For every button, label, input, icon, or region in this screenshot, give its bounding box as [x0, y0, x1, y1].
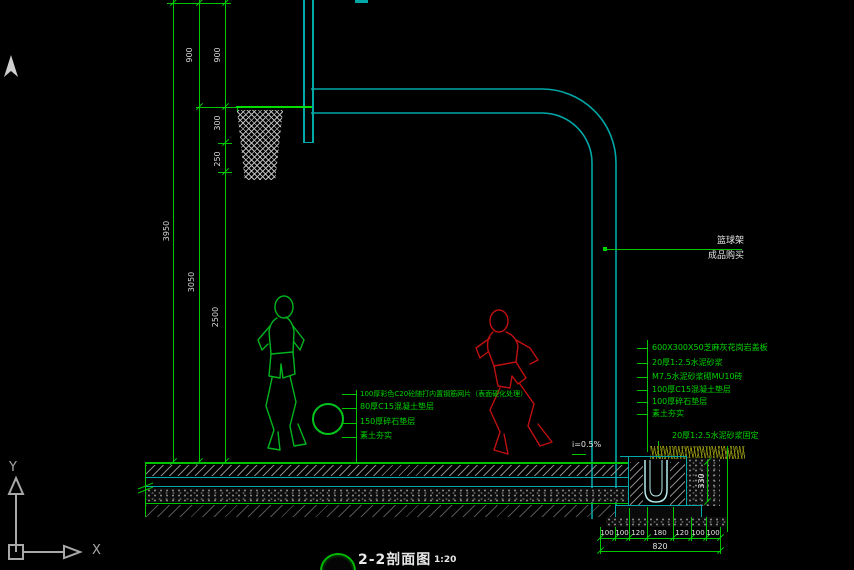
court-note: 100厚彩色C20砼随打内置钢筋网片（表面硬化处理）: [360, 389, 527, 399]
y-axis-label: Y: [9, 460, 17, 475]
dim-label-250: 250: [212, 144, 224, 174]
section-scale: 1:20: [434, 555, 456, 565]
court-note: 150厚碎石垫层: [360, 417, 415, 427]
note-leader-branch: [637, 363, 648, 364]
pavement-layer-line: [146, 503, 628, 504]
drain-wall-hatch: [670, 462, 685, 505]
dim-label-330: 330: [696, 466, 708, 496]
edge-note: 100厚碎石垫层: [652, 397, 707, 407]
mortar-label: 20厚1:2.5水泥砂浆固定: [672, 431, 759, 441]
dimension-extension-line: [727, 446, 728, 532]
dim-label-300: 300: [212, 108, 224, 138]
x-axis-label: X: [92, 543, 101, 558]
bottom-dim: 100: [614, 529, 630, 538]
note-leader-branch: [637, 402, 648, 403]
hoop-arm-and-pole: [300, 78, 630, 524]
pole-leader-dot: [603, 247, 607, 251]
foundation-bed: [606, 517, 728, 527]
cropped-structure-stub: [355, 0, 368, 3]
pavement-gravel-layer: [146, 488, 628, 502]
note-leader-branch: [637, 377, 648, 378]
drain-cover-line: [620, 456, 687, 457]
pavement-layer-line: [146, 477, 628, 478]
dimension-line: [600, 551, 721, 552]
section-mark-circle: [320, 553, 356, 570]
bottom-dim: 100: [690, 529, 706, 538]
pole-label-line1: 篮球架: [700, 237, 744, 246]
drain-wall-line: [628, 456, 629, 507]
dim-label-3050: 3050: [186, 267, 198, 297]
note-leader-branch: [342, 408, 356, 409]
section-title: 2-2剖面图: [358, 549, 431, 569]
dimension-extension-line: [225, 0, 226, 463]
section-break-mark: [137, 479, 155, 495]
slope-label: i=0.5%: [572, 440, 601, 449]
basketball: [312, 403, 344, 435]
court-note: 素土夯实: [360, 431, 392, 441]
edge-note: 600X300X50芝麻灰花岗岩盖板: [652, 343, 768, 353]
dim-label-3950: 3950: [161, 216, 173, 246]
bottom-dim: 100: [705, 529, 721, 538]
note-leader-line: [356, 390, 357, 462]
note-leader-branch: [342, 394, 356, 395]
court-note: 80厚C15混凝土垫层: [360, 402, 434, 412]
pavement-subgrade: [146, 505, 628, 517]
bottom-dim: 100: [599, 529, 615, 538]
bottom-dim: 120: [674, 529, 690, 538]
bottom-dim: 180: [652, 529, 668, 538]
pole-label-line2: 成品购买: [692, 252, 744, 261]
player-green-figure: [248, 294, 314, 458]
bottom-dim: 120: [630, 529, 646, 538]
cad-section-drawing: 900 900 300 250 3950 3050 2500 篮球架 成品购买: [0, 0, 854, 570]
note-leader-branch: [637, 348, 648, 349]
hoop-net: [237, 110, 283, 180]
hoop-rim: [236, 106, 312, 108]
dim-label-2500: 2500: [210, 302, 222, 332]
north-arrow-icon: [3, 55, 19, 81]
pavement-concrete-topping: [146, 465, 628, 476]
dimension-extension-line: [173, 0, 174, 463]
note-leader-branch: [637, 390, 648, 391]
edge-note: M7.5水泥砂浆砌MU10砖: [652, 372, 743, 382]
note-leader-branch: [342, 437, 356, 438]
bottom-dim-total: 820: [646, 542, 674, 551]
note-leader-branch: [342, 423, 356, 424]
dim-label-900: 900: [212, 40, 224, 70]
note-leader-branch: [637, 414, 648, 415]
player-red-figure: [468, 306, 568, 460]
edge-note: 20厚1:2.5水泥砂浆: [652, 358, 723, 368]
drain-u-channel: [641, 458, 671, 506]
pavement-layer-line: [146, 486, 628, 487]
edge-note: 100厚C15混凝土垫层: [652, 385, 731, 395]
dim-label-900: 900: [184, 40, 196, 70]
pole-leader-line: [605, 249, 742, 250]
edge-note: 素土夯实: [652, 409, 684, 419]
note-leader-line: [647, 340, 648, 452]
dimension-extension-line: [199, 0, 200, 463]
pavement-surface-line: [145, 462, 629, 464]
slope-arrow: [572, 454, 586, 455]
